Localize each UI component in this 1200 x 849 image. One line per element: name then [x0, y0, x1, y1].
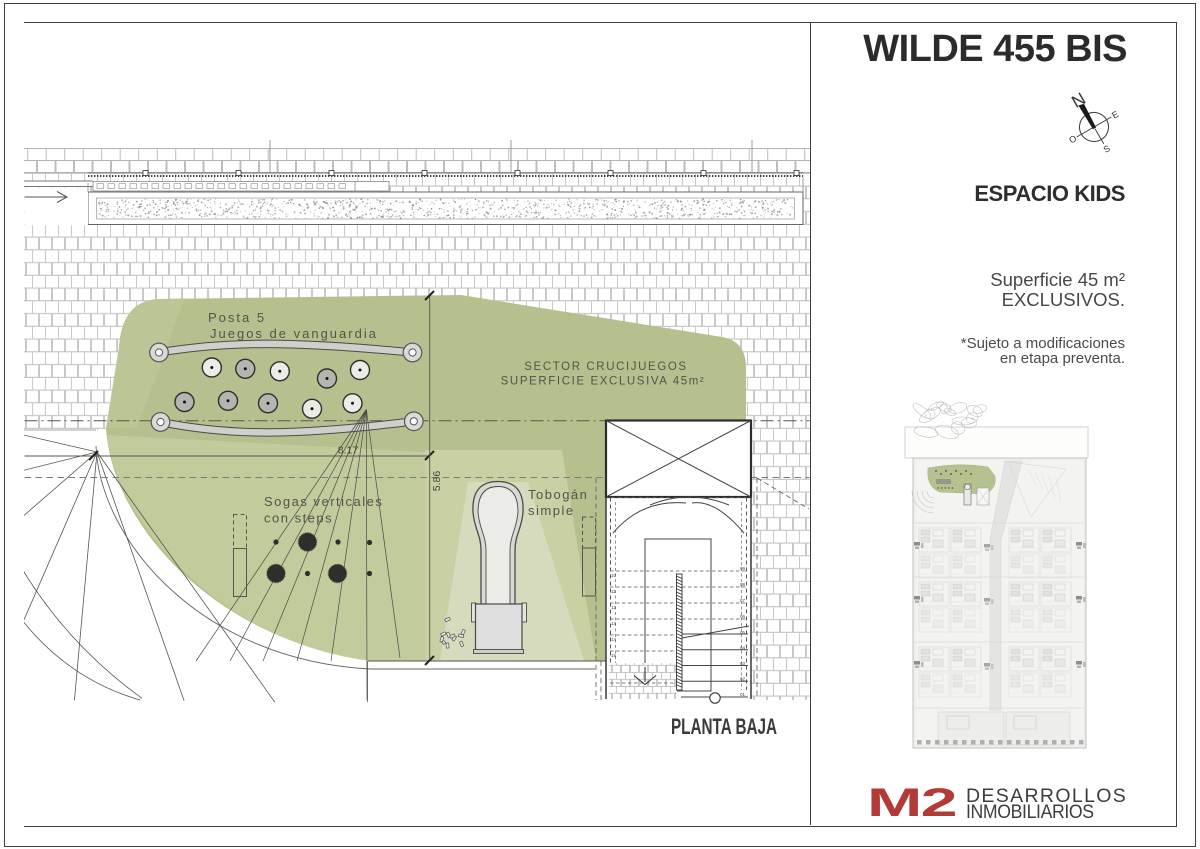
svg-text:con steps: con steps	[264, 511, 333, 526]
svg-text:11: 11	[611, 589, 616, 594]
svg-text:09: 09	[740, 566, 746, 571]
svg-text:Sogas verticales: Sogas verticales	[264, 494, 383, 509]
svg-text:10: 10	[611, 573, 617, 578]
svg-text:Tobogán: Tobogán	[528, 487, 588, 502]
svg-text:12: 12	[611, 605, 617, 610]
svg-text:5.86: 5.86	[431, 471, 443, 492]
svg-text:8.17: 8.17	[338, 445, 359, 457]
svg-text:E: E	[1110, 109, 1120, 121]
svg-text:01: 01	[740, 692, 746, 697]
svg-text:08: 08	[740, 582, 746, 587]
svg-text:O: O	[1067, 133, 1078, 145]
svg-text:04: 04	[740, 646, 746, 651]
svg-text:02: 02	[740, 677, 746, 682]
svg-text:03: 03	[740, 661, 746, 666]
svg-text:simple: simple	[528, 503, 575, 518]
svg-text:Posta 5: Posta 5	[208, 310, 266, 325]
svg-text:15: 15	[611, 653, 617, 658]
svg-text:PLANTA BAJA: PLANTA BAJA	[671, 714, 777, 739]
svg-text:14: 14	[611, 637, 617, 642]
svg-text:13: 13	[611, 621, 617, 626]
svg-text:S: S	[1102, 143, 1112, 155]
svg-text:05: 05	[740, 630, 746, 635]
svg-text:SUPERFICIE EXCLUSIVA 45m²: SUPERFICIE EXCLUSIVA 45m²	[501, 376, 706, 388]
svg-text:06: 06	[740, 614, 746, 619]
svg-text:07: 07	[740, 598, 746, 603]
